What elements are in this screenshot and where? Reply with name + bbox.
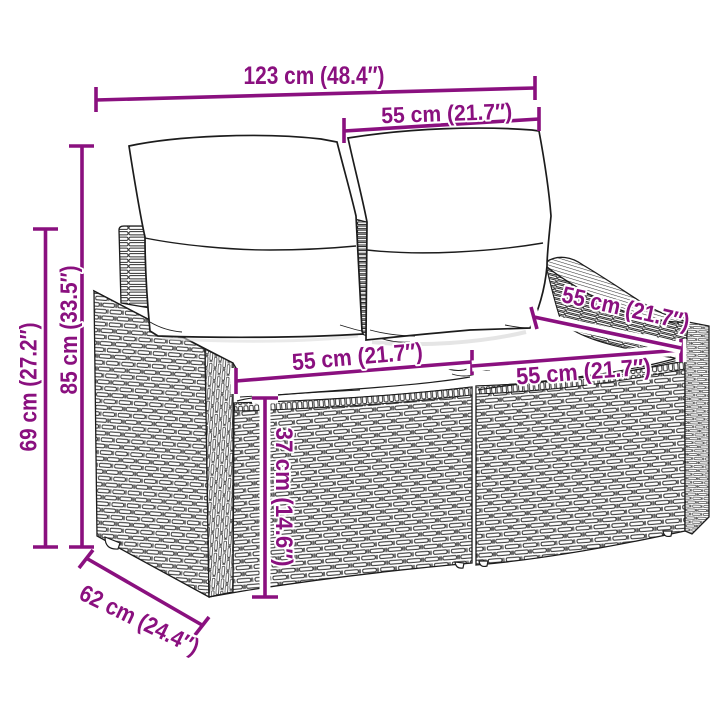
svg-text:69 cm (27.2″): 69 cm (27.2″) <box>16 323 43 452</box>
svg-text:85 cm (33.5″): 85 cm (33.5″) <box>56 266 83 395</box>
svg-text:37 cm (14.6″): 37 cm (14.6″) <box>270 428 297 567</box>
svg-text:55 cm (21.7″): 55 cm (21.7″) <box>381 99 513 129</box>
svg-text:123 cm (48.4″): 123 cm (48.4″) <box>244 63 385 90</box>
